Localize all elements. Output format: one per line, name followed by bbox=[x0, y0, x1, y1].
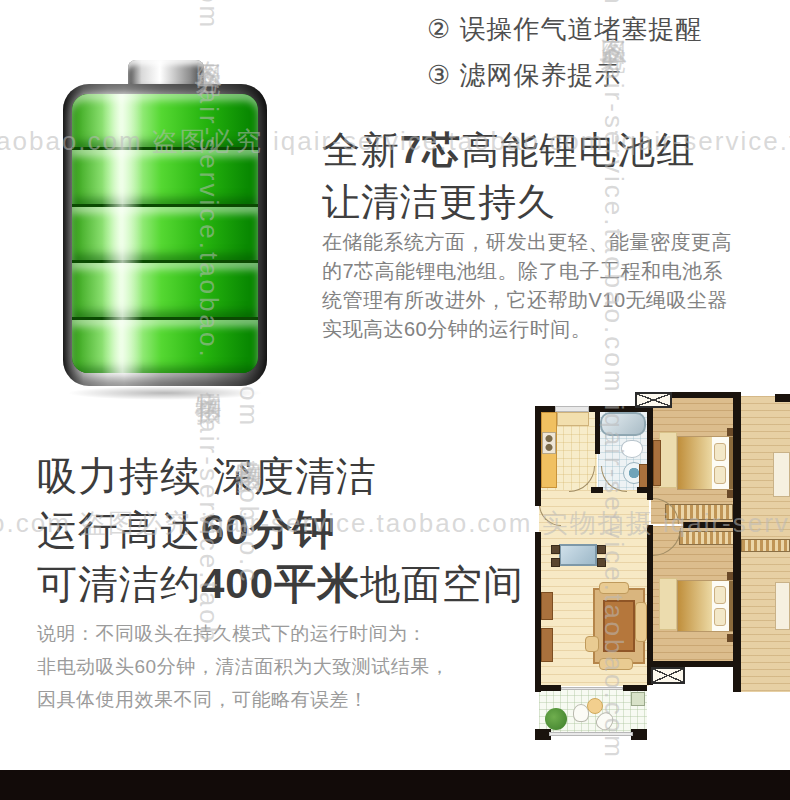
wall bbox=[595, 406, 600, 454]
wall bbox=[631, 729, 647, 740]
wall bbox=[775, 394, 790, 402]
notice-item: ② 误操作气道堵塞提醒 bbox=[427, 6, 703, 52]
battery-title: 全新7芯高能锂电池组 让清洁更持久 bbox=[322, 124, 695, 228]
armchair bbox=[585, 636, 599, 652]
battery-segment bbox=[72, 94, 258, 147]
sofa-seat bbox=[599, 582, 629, 594]
side-cabinet bbox=[541, 592, 553, 620]
dining-chair bbox=[597, 558, 606, 567]
ac-unit-icon bbox=[651, 667, 685, 684]
battery-shell bbox=[63, 84, 267, 386]
sofa-seat bbox=[599, 658, 633, 670]
battery-gloss-highlight bbox=[102, 94, 143, 373]
battery-title-line1: 全新7芯高能锂电池组 bbox=[322, 124, 695, 176]
toilet-icon bbox=[621, 440, 643, 458]
endurance-note: 说明：不同吸头在持久模式下的运行时间为： 非电动吸头60分钟，清洁面积为大致测试… bbox=[37, 617, 449, 716]
battery-segment bbox=[72, 263, 258, 316]
notice-list: ② 误操作气道堵塞提醒 ③ 滤网保养提示 bbox=[427, 6, 703, 98]
floor-plan bbox=[535, 392, 790, 740]
bed-pillow bbox=[714, 586, 726, 604]
wall bbox=[733, 528, 741, 662]
balcony-planter bbox=[631, 692, 645, 706]
bed-icon bbox=[677, 436, 735, 490]
dining-table bbox=[559, 544, 597, 566]
kitchen-counter-top bbox=[557, 412, 589, 426]
balcony-table bbox=[587, 698, 603, 714]
battery-segment bbox=[72, 207, 258, 260]
wall bbox=[733, 398, 741, 522]
battery-segment bbox=[72, 150, 258, 203]
kitchen-window bbox=[555, 406, 589, 412]
battery-description: 在储能系统方面，研发出更轻、能量密度更高的7芯高能锂电池组。除了电子工程和电池系… bbox=[322, 228, 734, 344]
endurance-line1: 吸力持续 深度清洁 bbox=[37, 450, 524, 503]
sofa-seat bbox=[635, 602, 647, 642]
note-line: 因具体使用效果不同，可能略有误差！ bbox=[37, 683, 449, 716]
bedside-mat bbox=[659, 432, 677, 488]
rug-center bbox=[603, 600, 635, 652]
bed-icon bbox=[677, 580, 735, 632]
bed-pillow bbox=[714, 608, 726, 626]
battery-body bbox=[72, 94, 258, 373]
wall bbox=[591, 487, 603, 493]
note-line: 说明：不同吸头在持久模式下的运行时间为： bbox=[37, 617, 449, 650]
bed-sliver bbox=[773, 452, 790, 497]
bottom-bar bbox=[0, 770, 790, 800]
bedside-mat bbox=[659, 578, 677, 630]
wall bbox=[535, 406, 541, 506]
wall bbox=[535, 685, 561, 691]
balcony-door-track bbox=[561, 687, 623, 690]
battery-title-line2: 让清洁更持久 bbox=[322, 176, 695, 228]
wall bbox=[535, 532, 541, 692]
dining-chair bbox=[551, 545, 560, 554]
bed-blanket bbox=[678, 581, 712, 631]
note-line: 非电动吸头60分钟，清洁面积为大致测试结果， bbox=[37, 650, 449, 683]
dining-chair bbox=[597, 545, 606, 554]
dining-chair bbox=[551, 558, 560, 567]
wall bbox=[647, 392, 653, 500]
battery-segment bbox=[72, 320, 258, 373]
dresser bbox=[653, 440, 661, 486]
endurance-heading: 吸力持续 深度清洁 运行高达60分钟 可清洁约400平米地面空间 bbox=[37, 450, 524, 611]
side-cabinet bbox=[541, 628, 553, 662]
balcony-rail bbox=[549, 732, 633, 736]
wall bbox=[535, 406, 650, 412]
endurance-line2: 运行高达60分钟 bbox=[37, 503, 524, 557]
notice-item: ③ 滤网保养提示 bbox=[427, 52, 703, 98]
ac-unit-icon bbox=[635, 392, 672, 408]
battery-illustration bbox=[63, 60, 267, 394]
wardrobe bbox=[679, 531, 739, 545]
wall bbox=[733, 661, 741, 692]
wardrobe bbox=[741, 539, 790, 552]
stove-icon bbox=[542, 432, 556, 454]
bed-pillow bbox=[714, 466, 726, 484]
wall bbox=[623, 685, 647, 691]
bed-pillow bbox=[714, 443, 726, 461]
page-root: ② 误操作气道堵塞提醒 ③ 滤网保养提示 全新7芯高能锂电池组 让清洁更持久 在… bbox=[0, 0, 790, 800]
endurance-line3: 可清洁约400平米地面空间 bbox=[37, 557, 524, 611]
wall bbox=[637, 487, 647, 493]
bed-sliver bbox=[775, 582, 790, 630]
balcony-plant-icon bbox=[545, 708, 567, 730]
battery-shadow bbox=[67, 386, 263, 400]
bed-blanket bbox=[678, 437, 712, 489]
bathtub-icon bbox=[600, 412, 646, 436]
